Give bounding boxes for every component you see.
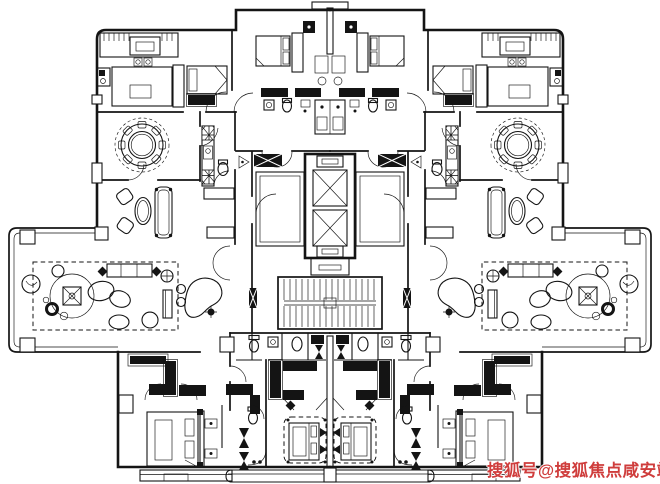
plan-right-half [330,10,651,482]
floorplan-image: 搜狐号@搜狐焦点咸安站 [0,0,660,484]
column [324,468,336,482]
plan-left-half [9,10,330,482]
watermark-text: 搜狐号@搜狐焦点咸安站 [487,457,660,481]
party-wall [327,336,333,467]
staircase [278,277,382,329]
party-wall [327,8,333,54]
elevator-shaft [305,154,355,275]
floor-plan-svg [0,0,660,484]
